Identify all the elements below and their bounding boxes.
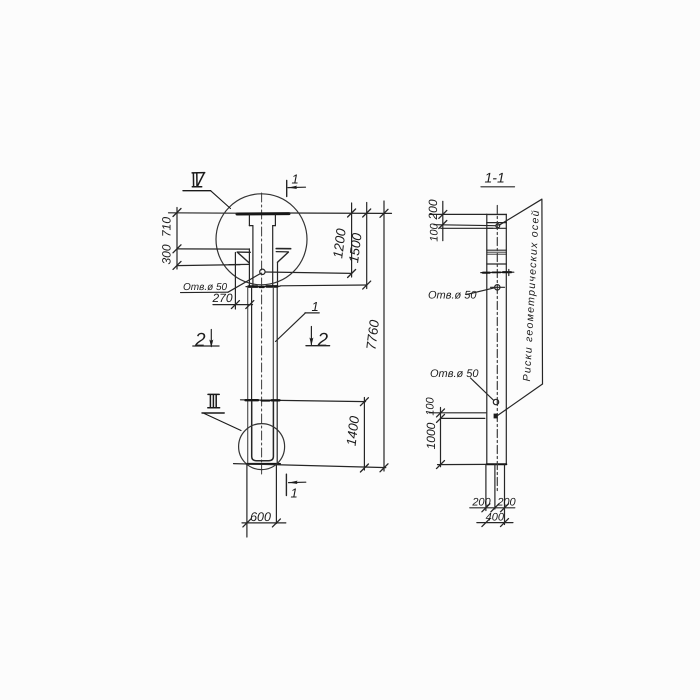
svg-text:Отв.ø 50: Отв.ø 50 [428, 290, 477, 302]
svg-text:400: 400 [486, 512, 505, 524]
svg-text:710: 710 [160, 217, 174, 237]
svg-text:1: 1 [292, 172, 299, 187]
svg-text:200: 200 [496, 497, 516, 509]
svg-text:600: 600 [250, 510, 271, 524]
svg-text:200: 200 [471, 497, 491, 509]
svg-text:300: 300 [160, 244, 174, 264]
svg-text:1-1: 1-1 [485, 170, 505, 186]
svg-text:2: 2 [317, 330, 329, 351]
svg-text:200: 200 [426, 199, 440, 220]
svg-text:1: 1 [291, 486, 298, 501]
svg-text:2: 2 [194, 330, 206, 351]
svg-text:1: 1 [312, 299, 319, 314]
svg-text:100: 100 [429, 222, 441, 241]
svg-text:1000: 1000 [424, 422, 438, 449]
svg-text:100: 100 [424, 396, 436, 415]
svg-text:Отв.ø 50: Отв.ø 50 [430, 368, 479, 380]
svg-text:270: 270 [211, 291, 232, 305]
